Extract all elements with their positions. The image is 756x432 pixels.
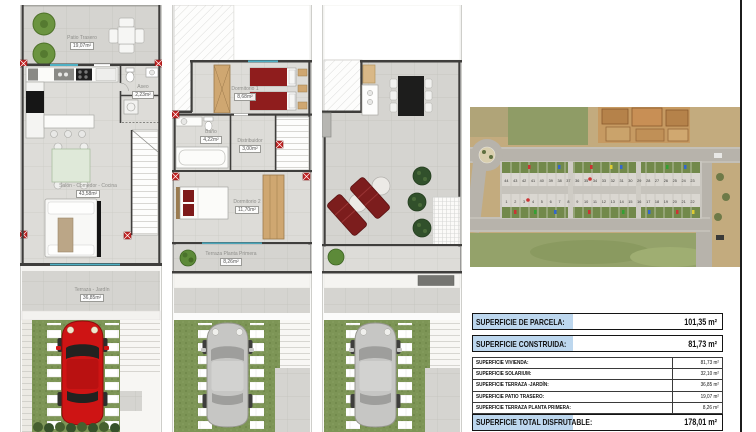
bench — [418, 276, 454, 286]
table-row-solarium: SUPERFICIE SOLARIUM: 32,10 m² — [473, 368, 722, 379]
dining-table — [52, 143, 90, 189]
lot-number: 35 — [584, 179, 588, 183]
solarium-dining-table — [390, 76, 432, 116]
floor-plan-sheet: 4443424140393837363534333231302928272625… — [0, 0, 756, 432]
walkway — [22, 311, 160, 320]
toilet — [126, 72, 134, 82]
open-air — [234, 5, 310, 60]
lower-terrace — [174, 288, 310, 313]
single-bed — [250, 68, 296, 86]
table-row-parcela: SUPERFICIE DE PARCELA: 101,35 m² — [472, 313, 723, 330]
row-label-cell: SUPERFICIE TOTAL DISFRUTABLE: — [473, 415, 573, 430]
row-label-cell: SUPERFICIE CONSTRUIDA: — [473, 336, 573, 351]
open-air — [324, 5, 460, 60]
nightstand — [298, 69, 307, 76]
lot-number: 18 — [655, 200, 659, 204]
lot-number: 5 — [541, 200, 543, 204]
lot-number: 11 — [593, 200, 597, 204]
table-row-patio-trasero: SUPERFICIE PATIO TRASERO: 19,07 m² — [473, 391, 722, 402]
terrace-plant — [328, 249, 344, 265]
walkway — [324, 313, 460, 320]
patio-door-opening — [94, 64, 110, 66]
areas-table: SUPERFICIE DE PARCELA: 101,35 m² SUPERFI… — [472, 313, 723, 431]
sofa — [45, 199, 97, 257]
lot-number: 16 — [637, 200, 641, 204]
lot-number: 24 — [681, 179, 685, 183]
patio-tree — [33, 43, 55, 65]
row-value: 81,73 m² — [688, 339, 717, 349]
lot-number: 30 — [628, 179, 632, 183]
row-value: 81,73 m² — [701, 360, 719, 366]
row-value: 32,10 m² — [701, 371, 719, 377]
lot-number: 10 — [584, 200, 588, 204]
kitchen-island — [44, 115, 94, 128]
wall — [322, 271, 462, 274]
patio-tree — [33, 13, 55, 35]
lot-number: 2 — [514, 200, 516, 204]
path-gap — [636, 162, 641, 218]
tv-unit — [97, 201, 101, 257]
solarium-plan — [322, 5, 462, 432]
gray-car — [349, 323, 402, 427]
roundabout — [471, 139, 503, 171]
sheet-frame-border — [740, 0, 742, 432]
townhouse-block — [500, 161, 702, 219]
toilet — [205, 122, 212, 131]
pillar-marker — [172, 111, 179, 118]
lot-number: 20 — [673, 200, 677, 204]
first-floor-plan — [172, 5, 312, 432]
lot-number: 32 — [611, 179, 615, 183]
lot-number: 44 — [504, 179, 508, 183]
pillar-marker — [155, 60, 162, 67]
pergola-lattice — [433, 197, 460, 245]
path-gap — [568, 162, 573, 218]
driveway-pavers — [250, 323, 264, 429]
wardrobe — [263, 175, 284, 239]
lower-patio — [324, 288, 460, 313]
lot-number: 43 — [513, 179, 517, 183]
lot-number: 36 — [575, 179, 579, 183]
gray-car — [201, 323, 254, 427]
lot-number: 7 — [559, 200, 561, 204]
row-value-cell: 81,73 m² — [573, 336, 722, 351]
pillar-marker — [276, 141, 283, 148]
lot-number: 37 — [566, 179, 570, 183]
lot-number: 17 — [646, 200, 650, 204]
terrace-plant — [180, 250, 196, 266]
kitchen-window — [50, 64, 78, 66]
lot-number: 3 — [523, 200, 525, 204]
coffee-table — [58, 218, 73, 252]
stairs — [132, 130, 158, 235]
glass-slider — [202, 242, 262, 244]
lot-number: 26 — [664, 179, 668, 183]
wardrobe — [214, 65, 230, 113]
table-row-total: SUPERFICIE TOTAL DISFRUTABLE: 178,01 m² — [472, 414, 723, 431]
driveway-pavers — [398, 323, 412, 429]
row-label: SUPERFICIE TERRAZA PLANTA PRIMERA: — [476, 405, 571, 411]
lot-number: 42 — [522, 179, 526, 183]
lot-number: 27 — [655, 179, 659, 183]
lot-number: 14 — [619, 200, 623, 204]
nightstand — [298, 85, 307, 92]
ground-floor-plan — [20, 5, 162, 432]
lot-number: 6 — [550, 200, 552, 204]
lower-terrace — [324, 247, 460, 272]
lot-number: 21 — [681, 200, 685, 204]
row-value-cell: 178,01 m² — [573, 415, 722, 430]
lot-number: 19 — [664, 200, 668, 204]
bedroom-window — [248, 60, 278, 62]
lot-number: 39 — [549, 179, 553, 183]
row-value: 36,85 m² — [701, 382, 719, 388]
lot-number: 33 — [602, 179, 606, 183]
row-label: SUPERFICIE TOTAL DISFRUTABLE: — [476, 417, 592, 427]
lot-number: 38 — [557, 179, 561, 183]
table-row-terraza-jardin: SUPERFICIE TERRAZA -JARDÍN: 36,85 m² — [473, 379, 722, 390]
lot-number: 12 — [602, 200, 606, 204]
row-label: SUPERFICIE SOLARIUM: — [476, 371, 531, 377]
pillar-marker — [20, 60, 27, 67]
lot-number: 15 — [628, 200, 632, 204]
pillar-marker — [172, 173, 179, 180]
wall — [172, 271, 312, 274]
terrace-wall — [172, 242, 312, 244]
single-bed — [250, 92, 296, 110]
pillar-marker — [303, 173, 310, 180]
pillar-marker — [124, 232, 131, 239]
glass-slider — [50, 264, 120, 266]
lot-number: 40 — [540, 179, 544, 183]
terrace-wall — [20, 263, 162, 266]
site-plan-photo: 4443424140393837363534333231302928272625… — [470, 107, 741, 267]
roof-void-hatch — [324, 60, 362, 112]
walkway — [174, 274, 310, 288]
row-label: SUPERFICIE CONSTRUIDA: — [476, 339, 566, 349]
sink — [150, 70, 155, 75]
table-detail-rows: SUPERFICIE VIVIENDA: 81,73 m² SUPERFICIE… — [472, 357, 723, 414]
row-label: SUPERFICIE TERRAZA -JARDÍN: — [476, 382, 549, 388]
nightstand — [298, 102, 307, 109]
row-value-cell: 101,35 m² — [573, 314, 722, 329]
lot-number: 13 — [611, 200, 615, 204]
lot-number: 4 — [532, 200, 534, 204]
lot-number: 23 — [690, 179, 694, 183]
table-row-construida: SUPERFICIE CONSTRUIDA: 81,73 m² — [472, 335, 723, 352]
row-value: 8,26 m² — [703, 405, 719, 411]
row-label: SUPERFICIE VIVIENDA: — [476, 360, 529, 366]
row-value: 178,01 m² — [684, 417, 717, 427]
sink — [181, 119, 187, 125]
access-hatch — [322, 113, 331, 137]
lot-number: 9 — [576, 200, 578, 204]
construction-buildings — [598, 107, 690, 143]
row-label: SUPERFICIE DE PARCELA: — [476, 317, 565, 327]
table-row-vivienda: SUPERFICIE VIVIENDA: 81,73 m² — [473, 358, 722, 368]
lot-number: 41 — [531, 179, 535, 183]
lot-number: 34 — [593, 179, 597, 183]
double-bed — [176, 187, 228, 219]
lot-number: 8 — [567, 200, 569, 204]
row-value: 19,07 m² — [701, 394, 719, 400]
lot-number: 28 — [646, 179, 650, 183]
wall — [322, 244, 462, 246]
table-row-terraza-planta-primera: SUPERFICIE TERRAZA PLANTA PRIMERA: 8,26 … — [473, 402, 722, 413]
lot-number: 1 — [505, 200, 507, 204]
row-value: 101,35 m² — [684, 317, 717, 327]
row-label: SUPERFICIE PATIO TRASERO: — [476, 394, 544, 400]
terrace-step — [22, 266, 160, 271]
walkway — [174, 313, 310, 320]
row-label-cell: SUPERFICIE DE PARCELA: — [473, 314, 573, 329]
lot-number: 22 — [690, 200, 694, 204]
red-car — [56, 321, 109, 425]
lot-number: 31 — [619, 179, 623, 183]
fridge — [26, 91, 44, 113]
lot-number: 29 — [637, 179, 641, 183]
wall — [172, 170, 312, 172]
terraza-floor — [22, 271, 160, 311]
lot-number: 25 — [673, 179, 677, 183]
